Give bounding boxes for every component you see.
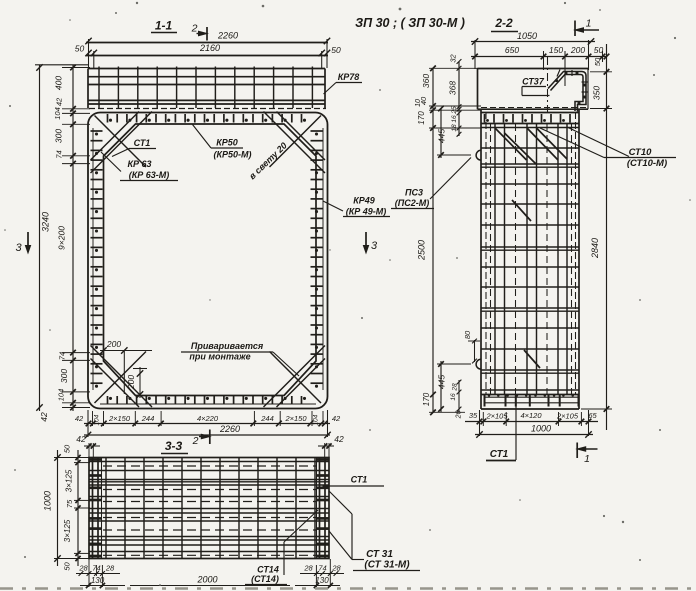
svg-text:4×220: 4×220 (197, 414, 219, 423)
svg-text:650: 650 (505, 45, 519, 55)
svg-text:ЗП 30 ; ( ЗП 30-М ): ЗП 30 ; ( ЗП 30-М ) (355, 16, 465, 30)
svg-text:74: 74 (318, 564, 326, 573)
svg-text:16: 16 (450, 393, 457, 401)
svg-text:(СТ 31-М): (СТ 31-М) (364, 560, 410, 571)
svg-text:300: 300 (54, 129, 64, 143)
svg-text:1: 1 (584, 453, 590, 465)
svg-text:(СТ14): (СТ14) (251, 574, 279, 584)
svg-text:КР78: КР78 (338, 72, 360, 82)
svg-text:3: 3 (371, 240, 378, 252)
svg-text:244: 244 (141, 414, 155, 423)
svg-text:2-2: 2-2 (494, 16, 513, 30)
svg-text:Приваривается: Приваривается (191, 341, 264, 351)
svg-text:(ПС2-М): (ПС2-М) (395, 198, 429, 208)
svg-text:104: 104 (57, 389, 66, 402)
svg-text:при монтаже: при монтаже (189, 352, 250, 362)
svg-text:2260: 2260 (217, 31, 238, 41)
svg-text:18: 18 (451, 124, 458, 132)
svg-text:1000: 1000 (43, 491, 53, 511)
svg-text:4×120: 4×120 (520, 411, 542, 420)
svg-text:42: 42 (334, 434, 344, 444)
svg-text:(КР50-М): (КР50-М) (213, 150, 251, 160)
svg-text:КР49: КР49 (353, 196, 375, 206)
svg-text:3×125: 3×125 (65, 469, 74, 492)
svg-text:42: 42 (55, 97, 64, 106)
svg-text:42: 42 (75, 414, 84, 423)
svg-text:2: 2 (191, 23, 198, 35)
svg-text:3-3: 3-3 (165, 439, 183, 453)
svg-text:130: 130 (315, 576, 329, 585)
svg-text:244: 244 (260, 414, 274, 423)
svg-text:170: 170 (417, 111, 426, 125)
svg-text:СТ10: СТ10 (629, 147, 653, 158)
svg-text:200: 200 (126, 375, 136, 390)
svg-text:2500: 2500 (417, 240, 427, 261)
svg-text:50: 50 (75, 44, 85, 54)
svg-text:3×125: 3×125 (63, 519, 72, 542)
svg-text:300: 300 (59, 369, 69, 383)
svg-text:КР 63: КР 63 (127, 159, 151, 169)
svg-text:28: 28 (78, 564, 88, 573)
svg-text:28: 28 (331, 564, 341, 573)
svg-text:400: 400 (54, 76, 64, 90)
svg-text:200: 200 (106, 339, 121, 349)
svg-text:16: 16 (451, 115, 458, 123)
svg-text:104: 104 (94, 414, 101, 425)
svg-text:80: 80 (463, 330, 472, 339)
svg-text:25: 25 (451, 106, 458, 115)
svg-text:35: 35 (469, 411, 478, 420)
svg-text:1000: 1000 (531, 424, 551, 434)
svg-text:104: 104 (53, 107, 62, 120)
svg-text:445: 445 (437, 129, 447, 143)
svg-text:360: 360 (421, 74, 431, 88)
svg-text:КР50: КР50 (216, 138, 238, 148)
svg-text:(КР 49-М): (КР 49-М) (346, 207, 387, 217)
svg-text:350: 350 (592, 86, 602, 100)
svg-text:2160: 2160 (199, 43, 220, 53)
svg-text:СТ1: СТ1 (134, 138, 151, 148)
svg-text:9×200: 9×200 (57, 226, 67, 250)
svg-text:104: 104 (313, 414, 320, 425)
svg-text:1: 1 (586, 18, 592, 30)
svg-text:2840: 2840 (590, 238, 600, 259)
svg-text:150: 150 (549, 45, 563, 55)
svg-text:2260: 2260 (219, 424, 240, 434)
svg-text:СТ1: СТ1 (351, 475, 368, 485)
svg-text:200: 200 (570, 45, 585, 55)
svg-text:СТ1: СТ1 (490, 449, 509, 460)
svg-text:(СТ10-М): (СТ10-М) (627, 158, 667, 169)
svg-text:50: 50 (331, 45, 341, 55)
svg-text:65: 65 (588, 411, 597, 420)
svg-text:10: 10 (415, 99, 422, 107)
svg-text:(КР 63-М): (КР 63-М) (129, 170, 170, 180)
svg-text:368: 368 (448, 81, 458, 95)
svg-text:74: 74 (55, 150, 64, 158)
svg-text:170: 170 (422, 392, 431, 406)
svg-text:1-1: 1-1 (155, 19, 173, 33)
svg-text:42: 42 (332, 414, 341, 423)
svg-text:2: 2 (192, 435, 199, 447)
svg-text:СТ14: СТ14 (257, 565, 279, 575)
svg-text:2×105: 2×105 (556, 412, 579, 421)
svg-text:2000: 2000 (196, 575, 217, 585)
svg-text:2×150: 2×150 (284, 414, 307, 423)
svg-text:445: 445 (437, 375, 447, 389)
svg-text:75: 75 (65, 499, 74, 508)
svg-text:ПС3: ПС3 (405, 188, 423, 198)
svg-text:42: 42 (39, 412, 49, 422)
svg-text:3: 3 (15, 242, 22, 254)
svg-text:СТ37: СТ37 (522, 77, 545, 87)
svg-text:28: 28 (105, 564, 115, 573)
svg-text:50: 50 (63, 562, 72, 571)
svg-text:50: 50 (593, 57, 602, 66)
svg-text:1050: 1050 (517, 31, 537, 41)
svg-text:3240: 3240 (41, 212, 51, 232)
svg-text:50: 50 (63, 444, 72, 453)
svg-text:2×105: 2×105 (485, 412, 508, 421)
svg-text:32: 32 (449, 54, 458, 63)
svg-text:2×150: 2×150 (108, 414, 131, 423)
svg-text:СТ 31: СТ 31 (366, 549, 393, 560)
svg-text:42: 42 (76, 434, 86, 444)
svg-text:74: 74 (58, 352, 67, 360)
svg-text:28: 28 (303, 564, 313, 573)
